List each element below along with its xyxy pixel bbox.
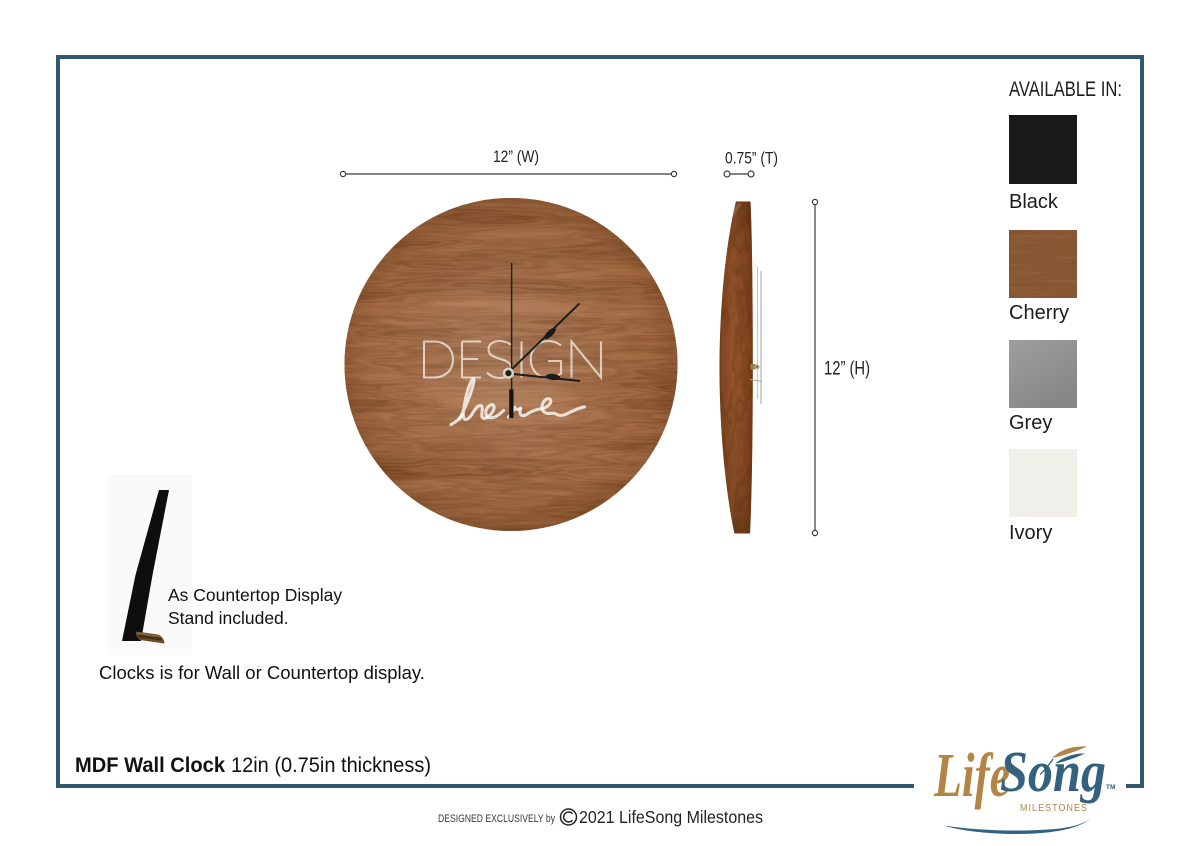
svg-text:Cherry: Cherry: [1009, 302, 1069, 324]
svg-text:Stand included.: Stand included.: [168, 608, 289, 628]
svg-text:MILESTONES: MILESTONES: [1020, 803, 1088, 814]
svg-text:12” (W): 12” (W): [493, 148, 539, 166]
svg-text:MDF Wall Clock12in (0.75in thi: MDF Wall Clock12in (0.75in thickness): [75, 753, 431, 777]
svg-text:Grey: Grey: [1009, 412, 1052, 434]
svg-text:Song: Song: [1000, 739, 1106, 804]
svg-text:DESIGNED EXCLUSIVELY by: DESIGNED EXCLUSIVELY by: [438, 813, 555, 825]
svg-text:TM: TM: [1106, 784, 1115, 791]
svg-text:Black: Black: [1009, 191, 1059, 213]
svg-text:Clocks is for Wall or Countert: Clocks is for Wall or Countertop display…: [99, 662, 425, 683]
svg-text:As Countertop Display: As Countertop Display: [168, 585, 342, 605]
svg-text:Life: Life: [933, 742, 1010, 810]
svg-text:12” (H): 12” (H): [824, 358, 870, 380]
svg-text:0.75” (T): 0.75” (T): [725, 150, 778, 168]
svg-text:2021 LifeSong Milestones: 2021 LifeSong Milestones: [579, 807, 763, 827]
svg-text:AVAILABLE IN:: AVAILABLE IN:: [1009, 78, 1122, 101]
svg-text:Ivory: Ivory: [1009, 522, 1052, 544]
